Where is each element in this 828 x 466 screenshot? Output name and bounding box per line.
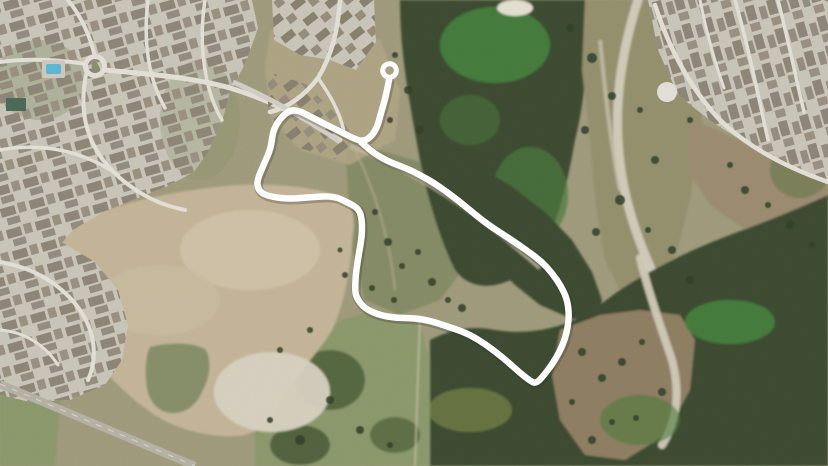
aerial-image [0, 0, 828, 466]
screenshot-root [0, 0, 828, 466]
photo-grain [0, 0, 828, 466]
